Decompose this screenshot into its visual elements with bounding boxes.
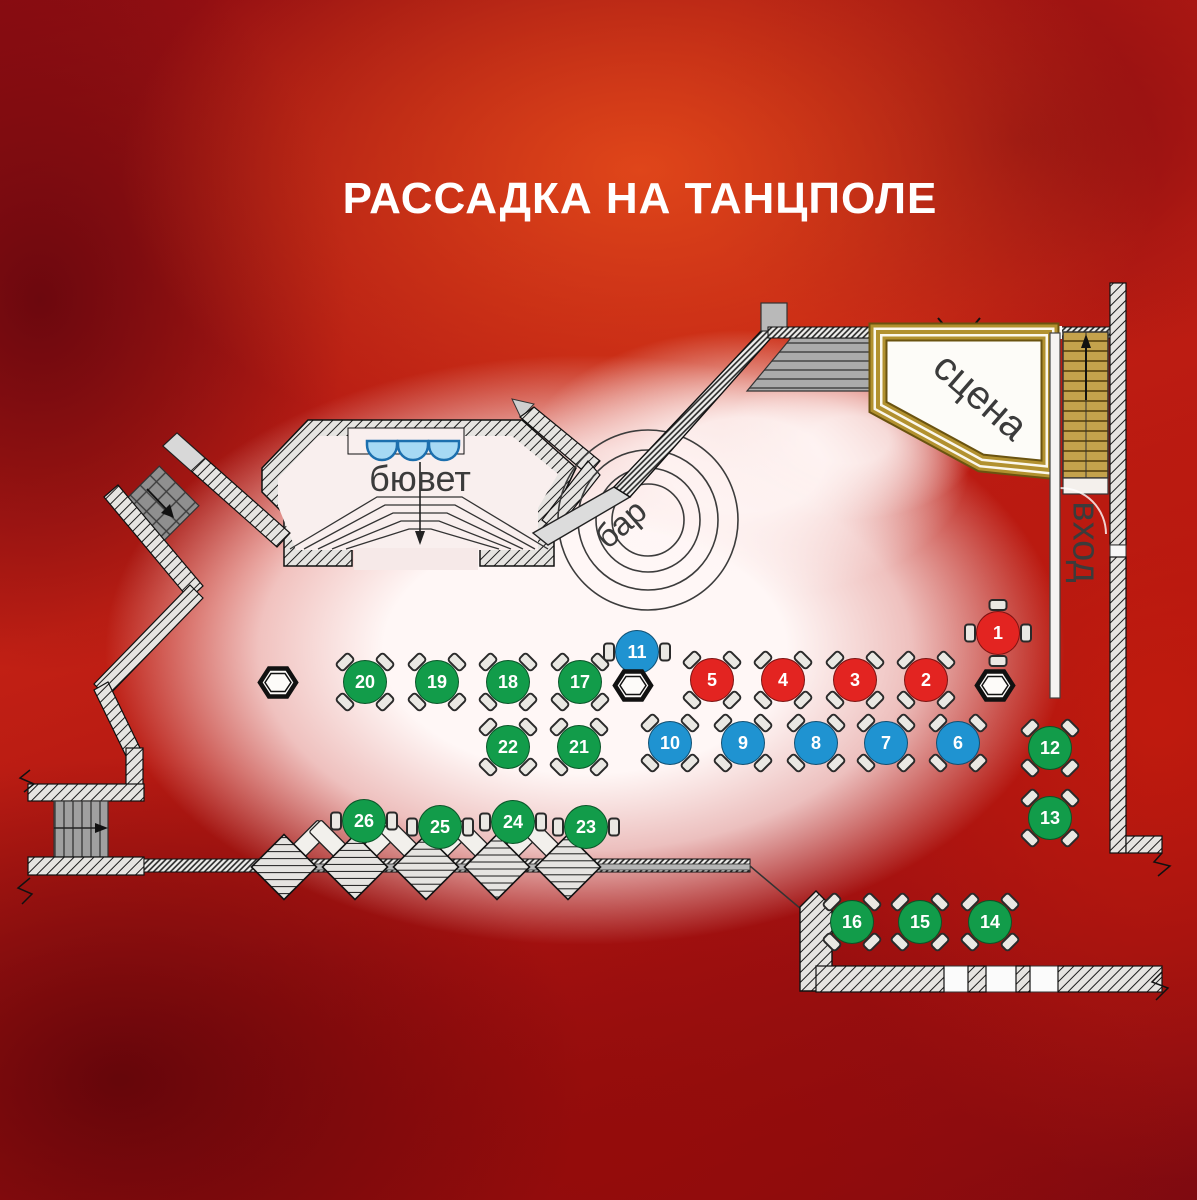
chair	[659, 643, 671, 662]
table-number: 4	[761, 658, 805, 702]
chair	[608, 818, 620, 837]
table-number: 2	[904, 658, 948, 702]
table-number: 24	[491, 800, 535, 844]
chair	[386, 812, 398, 831]
table-number: 25	[418, 805, 462, 849]
hexagon-icon	[612, 668, 654, 704]
column-hexagon	[612, 668, 654, 709]
chair	[989, 655, 1008, 667]
chair	[406, 818, 418, 837]
table-number: 7	[864, 721, 908, 765]
chair	[552, 818, 564, 837]
table-number: 3	[833, 658, 877, 702]
table-number: 6	[936, 721, 980, 765]
chair	[989, 599, 1008, 611]
column-hexagon	[257, 665, 299, 706]
table-number: 20	[343, 660, 387, 704]
chair	[479, 813, 491, 832]
table-number: 1	[976, 611, 1020, 655]
table-number: 5	[690, 658, 734, 702]
table-number: 15	[898, 900, 942, 944]
table-number: 9	[721, 721, 765, 765]
table-number: 13	[1028, 796, 1072, 840]
table-number: 17	[558, 660, 602, 704]
chair	[330, 812, 342, 831]
table-number: 26	[342, 799, 386, 843]
table-number: 21	[557, 725, 601, 769]
table-number: 8	[794, 721, 838, 765]
seating-poster: РАССАДКА НА ТАНЦПОЛЕ	[0, 0, 1197, 1200]
table-number: 10	[648, 721, 692, 765]
tables-layer: 1234567891011121314151617181920212223242…	[0, 0, 1197, 1200]
table-number: 22	[486, 725, 530, 769]
table-number: 19	[415, 660, 459, 704]
hexagon-icon	[257, 665, 299, 701]
table-number: 23	[564, 805, 608, 849]
chair	[1020, 624, 1032, 643]
column-hexagon	[974, 668, 1016, 709]
table-number: 16	[830, 900, 874, 944]
table-number: 18	[486, 660, 530, 704]
chair	[462, 818, 474, 837]
table-number: 14	[968, 900, 1012, 944]
hexagon-icon	[974, 668, 1016, 704]
chair	[535, 813, 547, 832]
chair	[964, 624, 976, 643]
table-number: 12	[1028, 726, 1072, 770]
